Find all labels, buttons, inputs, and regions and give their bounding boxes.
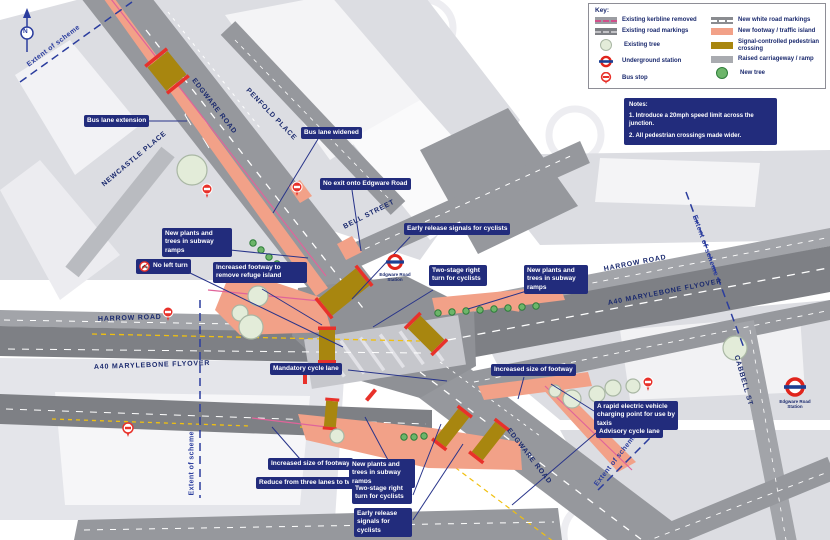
underground-roundel-icon: [595, 55, 617, 68]
extent-of-scheme-bottom-left: Extent of scheme: [189, 431, 196, 495]
station-label-east: Edgware Road Station: [772, 399, 818, 410]
station-label-centre: Edgware Road Station: [372, 272, 418, 283]
key-item: New white road markings: [711, 17, 819, 24]
annotation-two-stage-bottom: Two-stage right turn for cyclists: [352, 483, 412, 504]
key-item: Existing tree: [595, 39, 703, 51]
key-item: Signal-controlled pedestrian crossing: [711, 39, 819, 52]
existing-tree-swatch: [600, 39, 612, 51]
key-column-right: New white road markings New footway / tr…: [711, 17, 819, 84]
white-markings-swatch: [711, 17, 733, 24]
note-1: 1. Introduce a 20mph speed limit across …: [629, 113, 772, 128]
annotation-reduce-lanes: Reduce from three lanes to two: [256, 477, 359, 489]
key-panel: Key: Existing kerbline removed Existing …: [588, 3, 826, 89]
no-left-turn-icon: [139, 261, 150, 272]
road-markings-swatch: [595, 28, 617, 35]
annotation-increased-footway-right: Increased size of footway: [491, 364, 576, 376]
key-item: Existing road markings: [595, 28, 703, 35]
key-column-left: Existing kerbline removed Existing road …: [595, 17, 703, 84]
underground-roundel-icon: [784, 379, 806, 395]
annotation-no-left-turn: No left turn: [136, 259, 191, 274]
note-2: 2. All pedestrian crossings made wider.: [629, 133, 772, 141]
annotation-early-release-top: Early release signals for cyclists: [404, 223, 510, 235]
bus-stop-icon: [595, 72, 617, 84]
annotation-increased-footway-left: Increased size of footway: [268, 458, 353, 470]
annotation-advisory-cycle-lane: Advisory cycle lane: [596, 426, 663, 438]
annotation-no-exit: No exit onto Edgware Road: [320, 178, 411, 190]
key-title: Key:: [595, 7, 819, 14]
annotation-increased-footway-refuge: Increased footway to remove refuge islan…: [213, 262, 307, 283]
raised-carriageway-swatch: [711, 56, 733, 63]
new-tree-swatch: [716, 67, 728, 79]
notes-title: Notes:: [629, 102, 772, 108]
key-item: Underground station: [595, 55, 703, 68]
annotation-bus-lane-widened: Bus lane widened: [301, 127, 362, 139]
key-item: New tree: [711, 67, 819, 79]
signal-crossing-swatch: [711, 42, 733, 49]
annotation-mandatory-cycle-lane: Mandatory cycle lane: [270, 363, 342, 375]
key-item: Bus stop: [595, 72, 703, 84]
scheme-map: N Key: Existing kerbline removed Existin…: [0, 0, 830, 540]
compass-north-label: N: [23, 28, 28, 35]
key-item: New footway / traffic island: [711, 28, 819, 35]
annotation-new-plants-top: New plants and trees in subway ramps: [162, 228, 232, 257]
key-item: Existing kerbline removed: [595, 17, 703, 24]
annotation-bus-lane-extension: Bus lane extension: [84, 115, 149, 127]
annotation-two-stage-centre: Two-stage right turn for cyclists: [429, 265, 487, 286]
annotation-early-release-bottom: Early release signals for cyclists: [354, 508, 412, 537]
footway-swatch: [711, 28, 733, 35]
underground-roundel-icon: [386, 256, 404, 269]
kerbline-removed-swatch: [595, 17, 617, 24]
notes-panel: Notes: 1. Introduce a 20mph speed limit …: [624, 98, 777, 145]
annotation-new-plants-right: New plants and trees in subway ramps: [524, 265, 588, 294]
key-item: Raised carriageway / ramp: [711, 56, 819, 63]
